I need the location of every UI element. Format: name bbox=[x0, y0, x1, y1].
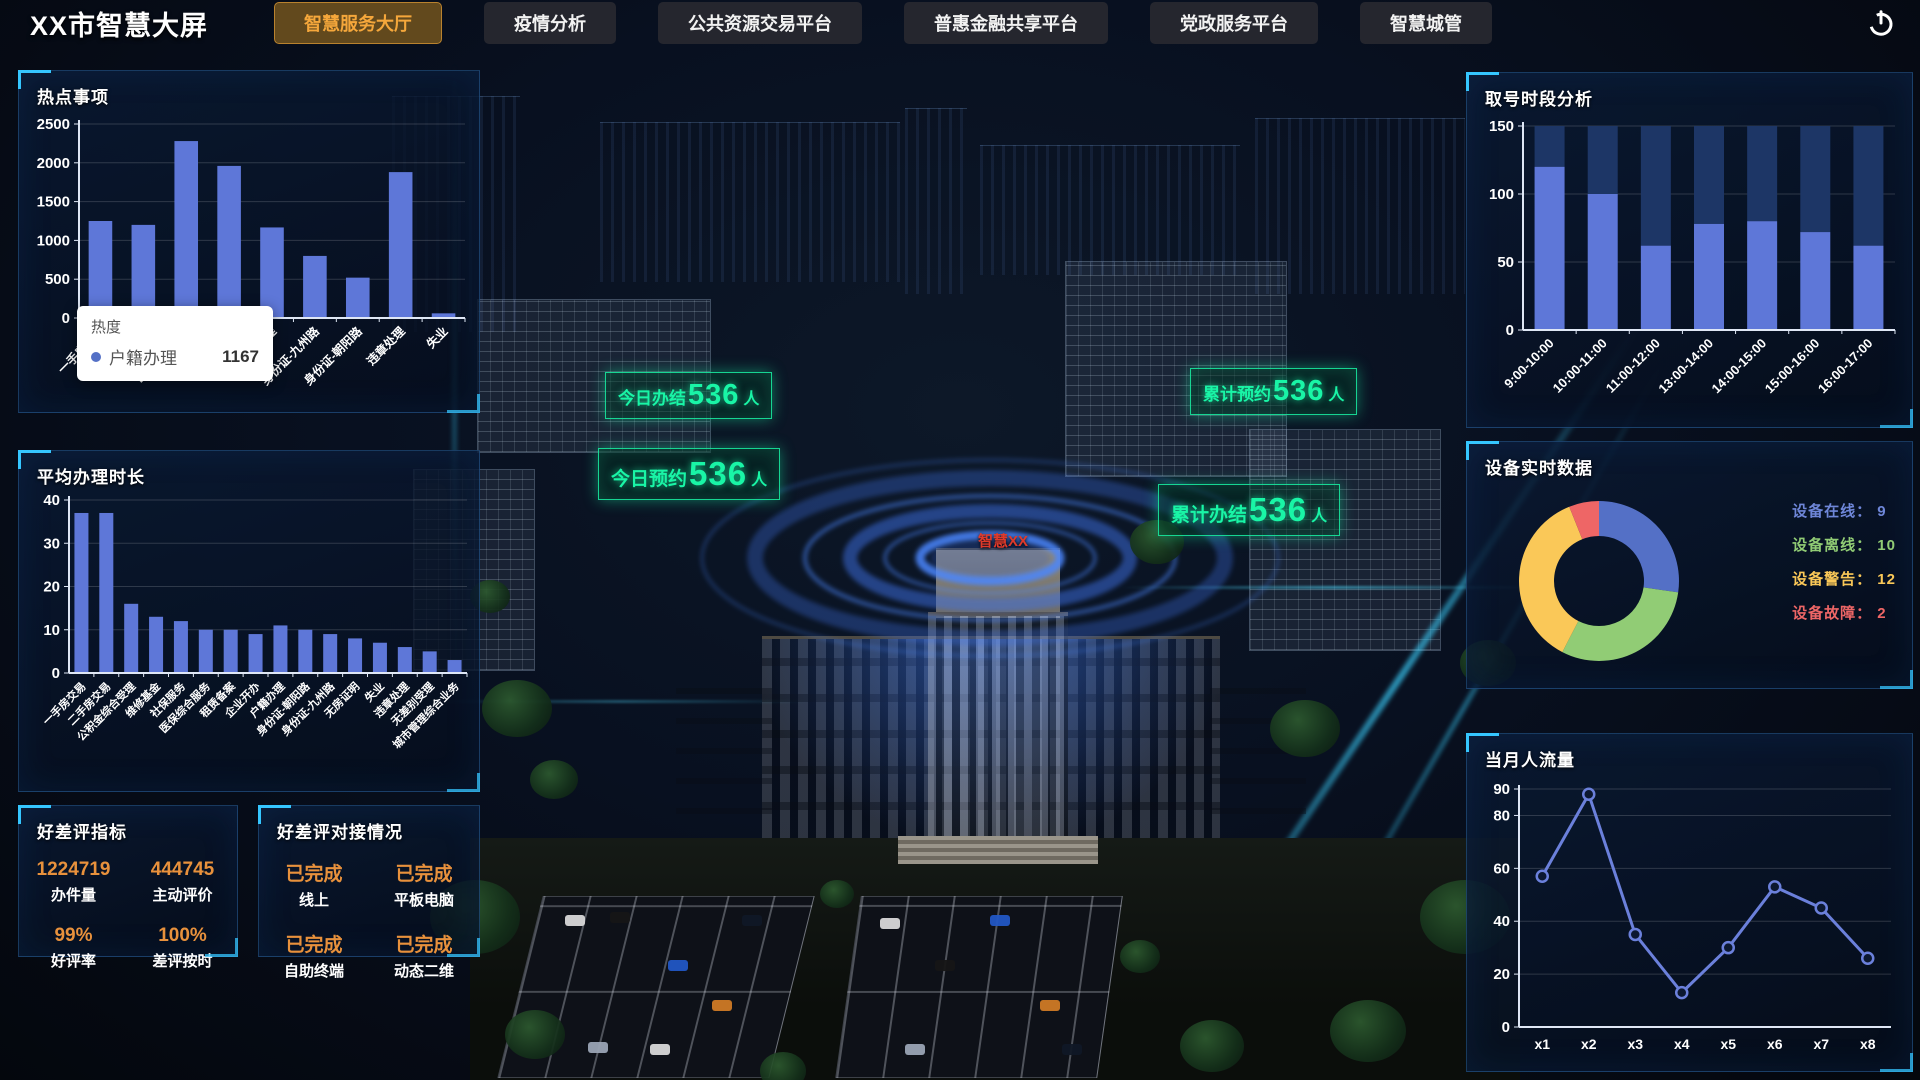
tree bbox=[482, 680, 552, 737]
series-dot bbox=[91, 352, 101, 362]
svg-text:2000: 2000 bbox=[37, 155, 70, 172]
stat-suffix: 人 bbox=[1311, 502, 1327, 526]
stat-number: 536 bbox=[688, 379, 739, 412]
stat-total-booked: 累计预约536人 bbox=[1190, 368, 1357, 415]
monthly-flow-chart[interactable]: 02040608090x1x2x3x4x5x6x7x8 bbox=[1471, 773, 1909, 1073]
svg-text:10: 10 bbox=[43, 622, 60, 639]
car bbox=[610, 912, 630, 923]
metric-label: 自助终端 bbox=[259, 960, 369, 981]
stat-prefix: 今日办结 bbox=[618, 384, 686, 409]
car bbox=[742, 915, 762, 926]
svg-text:100: 100 bbox=[1489, 186, 1514, 203]
tooltip-title: 热度 bbox=[91, 316, 259, 337]
building-label: 智慧XX bbox=[948, 530, 1058, 551]
car bbox=[990, 915, 1010, 926]
distant-building bbox=[600, 122, 900, 282]
svg-text:x2: x2 bbox=[1581, 1036, 1597, 1052]
legend-row: 设备在线： 9 bbox=[1792, 500, 1896, 521]
queue-analysis-chart[interactable]: 9:00-10:0010:00-11:0011:00-12:0013:00-14… bbox=[1471, 112, 1909, 430]
stat-today-completed: 今日办结536人 bbox=[605, 372, 772, 419]
building-tower bbox=[936, 548, 1060, 618]
svg-text:x8: x8 bbox=[1860, 1036, 1876, 1052]
metric-item: 1224719办件量 bbox=[19, 859, 128, 905]
svg-text:80: 80 bbox=[1493, 807, 1510, 824]
car bbox=[905, 1044, 925, 1055]
metric-item: 已完成动态二维 bbox=[369, 930, 479, 981]
nav-tab-4[interactable]: 普惠金融共享平台 bbox=[904, 2, 1108, 44]
car bbox=[565, 915, 585, 926]
metric-label: 好评率 bbox=[19, 950, 128, 971]
svg-text:违章处理: 违章处理 bbox=[363, 324, 408, 369]
metric-item: 99%好评率 bbox=[19, 925, 128, 971]
tree bbox=[1180, 1020, 1244, 1072]
avg-time-chart[interactable]: 一手房交易二手房交易公积金综合受理维修基金社保服务医保综合服务租赁备案企业开办户… bbox=[23, 490, 475, 795]
hot-items-panel: 热点事项 一手房交易二手房交易医保综合服务社保服务户籍办理身份证-九州路身份证-… bbox=[18, 70, 480, 413]
stat-prefix: 今日预约 bbox=[611, 464, 687, 491]
svg-text:150: 150 bbox=[1489, 118, 1514, 135]
tooltip-value: 1167 bbox=[222, 347, 259, 367]
avg-time-panel: 平均办理时长 一手房交易二手房交易公积金综合受理维修基金社保服务医保综合服务租赁… bbox=[18, 450, 480, 792]
metric-label: 线上 bbox=[259, 889, 369, 910]
svg-text:1500: 1500 bbox=[37, 194, 70, 211]
stat-number: 536 bbox=[689, 455, 747, 493]
stat-total-completed: 累计办结536人 bbox=[1158, 484, 1340, 536]
chart-tooltip: 热度 户籍办理 1167 bbox=[77, 306, 273, 381]
svg-text:1000: 1000 bbox=[37, 232, 70, 249]
rating-status-panel: 好差评对接情况 已完成线上已完成平板电脑已完成自助终端已完成动态二维 bbox=[258, 805, 480, 957]
metric-item: 已完成线上 bbox=[259, 859, 369, 910]
metric-label: 主动评价 bbox=[128, 884, 237, 905]
svg-text:40: 40 bbox=[43, 492, 60, 509]
tree bbox=[505, 1010, 565, 1059]
svg-text:x1: x1 bbox=[1534, 1036, 1550, 1052]
wireframe-building bbox=[1250, 430, 1440, 650]
stat-suffix: 人 bbox=[743, 385, 759, 409]
legend-row: 设备离线： 10 bbox=[1792, 534, 1896, 555]
building-wing bbox=[676, 682, 772, 838]
car bbox=[712, 1000, 732, 1011]
tree bbox=[1330, 1000, 1406, 1062]
stat-today-booked: 今日预约536人 bbox=[598, 448, 780, 500]
car bbox=[650, 1044, 670, 1055]
tree bbox=[1270, 700, 1340, 757]
svg-text:0: 0 bbox=[1502, 1019, 1510, 1036]
device-donut-chart[interactable] bbox=[1481, 481, 1721, 681]
building-steps bbox=[898, 836, 1098, 864]
stat-prefix: 累计预约 bbox=[1203, 380, 1271, 405]
svg-text:9:00-10:00: 9:00-10:00 bbox=[1501, 336, 1557, 392]
panel-title: 热点事项 bbox=[19, 71, 479, 110]
device-legend: 设备在线： 9设备离线： 10设备警告： 12设备故障： 2 bbox=[1792, 500, 1896, 623]
svg-text:0: 0 bbox=[52, 665, 60, 682]
metric-label: 动态二维 bbox=[369, 960, 479, 981]
svg-text:40: 40 bbox=[1493, 913, 1510, 930]
car bbox=[1062, 1044, 1082, 1055]
tree bbox=[820, 880, 854, 908]
car bbox=[935, 960, 955, 971]
monthly-flow-panel: 当月人流量 02040608090x1x2x3x4x5x6x7x8 bbox=[1466, 733, 1913, 1072]
svg-text:60: 60 bbox=[1493, 860, 1510, 877]
metric-value: 99% bbox=[19, 925, 128, 947]
page-title: XX市智慧大屏 bbox=[30, 4, 208, 43]
metric-item: 已完成平板电脑 bbox=[369, 859, 479, 910]
nav-tab-2[interactable]: 疫情分析 bbox=[484, 2, 616, 44]
svg-text:16:00-17:00: 16:00-17:00 bbox=[1815, 336, 1876, 397]
panel-title: 当月人流量 bbox=[1467, 734, 1912, 773]
svg-text:11:00-12:00: 11:00-12:00 bbox=[1603, 336, 1663, 396]
tree bbox=[530, 760, 578, 799]
metric-label: 差评按时 bbox=[128, 950, 237, 971]
svg-text:90: 90 bbox=[1493, 781, 1510, 798]
legend-row: 设备警告： 12 bbox=[1792, 568, 1896, 589]
nav-tab-3[interactable]: 公共资源交易平台 bbox=[658, 2, 862, 44]
metric-value: 444745 bbox=[128, 859, 237, 881]
svg-text:10:00-11:00: 10:00-11:00 bbox=[1550, 336, 1610, 396]
panel-title: 好差评指标 bbox=[19, 806, 237, 845]
panel-title: 平均办理时长 bbox=[19, 451, 479, 490]
nav-tab-6[interactable]: 智慧城管 bbox=[1360, 2, 1492, 44]
svg-text:20: 20 bbox=[1493, 966, 1510, 983]
svg-text:x5: x5 bbox=[1720, 1036, 1736, 1052]
nav-tabs: 智慧服务大厅疫情分析公共资源交易平台普惠金融共享平台党政服务平台智慧城管 bbox=[274, 2, 1492, 44]
stat-number: 536 bbox=[1273, 375, 1324, 408]
queue-analysis-panel: 取号时段分析 9:00-10:0010:00-11:0011:00-12:001… bbox=[1466, 72, 1913, 428]
stat-number: 536 bbox=[1249, 491, 1307, 529]
svg-text:2500: 2500 bbox=[37, 116, 70, 133]
metric-item: 已完成自助终端 bbox=[259, 930, 369, 981]
tree bbox=[1120, 940, 1160, 973]
metric-value: 已完成 bbox=[369, 930, 479, 957]
metric-label: 平板电脑 bbox=[369, 889, 479, 910]
svg-text:x6: x6 bbox=[1767, 1036, 1783, 1052]
svg-text:30: 30 bbox=[43, 535, 60, 552]
distant-building bbox=[1255, 118, 1465, 294]
device-data-panel: 设备实时数据 设备在线： 9设备离线： 10设备警告： 12设备故障： 2 bbox=[1466, 441, 1913, 689]
building-portico bbox=[928, 612, 1068, 838]
metric-value: 100% bbox=[128, 925, 237, 947]
rating-metrics-panel: 好差评指标 1224719办件量444745主动评价99%好评率100%差评按时 bbox=[18, 805, 238, 957]
svg-text:x3: x3 bbox=[1627, 1036, 1643, 1052]
power-icon bbox=[1866, 8, 1896, 38]
tooltip-series: 户籍办理 bbox=[109, 344, 177, 369]
svg-text:失业: 失业 bbox=[423, 324, 451, 352]
metric-label: 办件量 bbox=[19, 884, 128, 905]
metric-item: 444745主动评价 bbox=[128, 859, 237, 905]
distant-building bbox=[905, 108, 967, 294]
car bbox=[588, 1042, 608, 1053]
svg-text:15:00-16:00: 15:00-16:00 bbox=[1762, 336, 1823, 397]
svg-text:20: 20 bbox=[43, 579, 60, 596]
svg-text:0: 0 bbox=[1506, 322, 1514, 339]
svg-text:500: 500 bbox=[45, 271, 70, 288]
stat-suffix: 人 bbox=[751, 466, 767, 490]
svg-text:13:00-14:00: 13:00-14:00 bbox=[1655, 336, 1716, 397]
metric-value: 已完成 bbox=[259, 930, 369, 957]
distant-building bbox=[980, 145, 1240, 275]
svg-text:0: 0 bbox=[62, 310, 70, 327]
top-nav: XX市智慧大屏 智慧服务大厅疫情分析公共资源交易平台普惠金融共享平台党政服务平台… bbox=[0, 0, 1920, 46]
svg-text:50: 50 bbox=[1497, 254, 1514, 271]
svg-text:x4: x4 bbox=[1674, 1036, 1690, 1052]
metric-value: 1224719 bbox=[19, 859, 128, 881]
legend-row: 设备故障： 2 bbox=[1792, 602, 1896, 623]
car bbox=[880, 918, 900, 929]
rating-status-grid: 已完成线上已完成平板电脑已完成自助终端已完成动态二维 bbox=[259, 859, 479, 981]
metric-item: 100%差评按时 bbox=[128, 925, 237, 971]
panel-title: 好差评对接情况 bbox=[259, 806, 479, 845]
panel-title: 取号时段分析 bbox=[1467, 73, 1912, 112]
stat-prefix: 累计办结 bbox=[1171, 500, 1247, 527]
svg-text:x7: x7 bbox=[1813, 1036, 1829, 1052]
svg-text:14:00-15:00: 14:00-15:00 bbox=[1709, 336, 1770, 397]
nav-tab-1[interactable]: 智慧服务大厅 bbox=[274, 2, 442, 44]
car bbox=[1040, 1000, 1060, 1011]
nav-tab-5[interactable]: 党政服务平台 bbox=[1150, 2, 1318, 44]
metric-value: 已完成 bbox=[259, 859, 369, 886]
stat-suffix: 人 bbox=[1328, 381, 1344, 405]
car bbox=[668, 960, 688, 971]
power-button[interactable] bbox=[1866, 8, 1896, 38]
metric-value: 已完成 bbox=[369, 859, 479, 886]
panel-title: 设备实时数据 bbox=[1467, 442, 1912, 481]
rating-metrics-grid: 1224719办件量444745主动评价99%好评率100%差评按时 bbox=[19, 859, 237, 971]
